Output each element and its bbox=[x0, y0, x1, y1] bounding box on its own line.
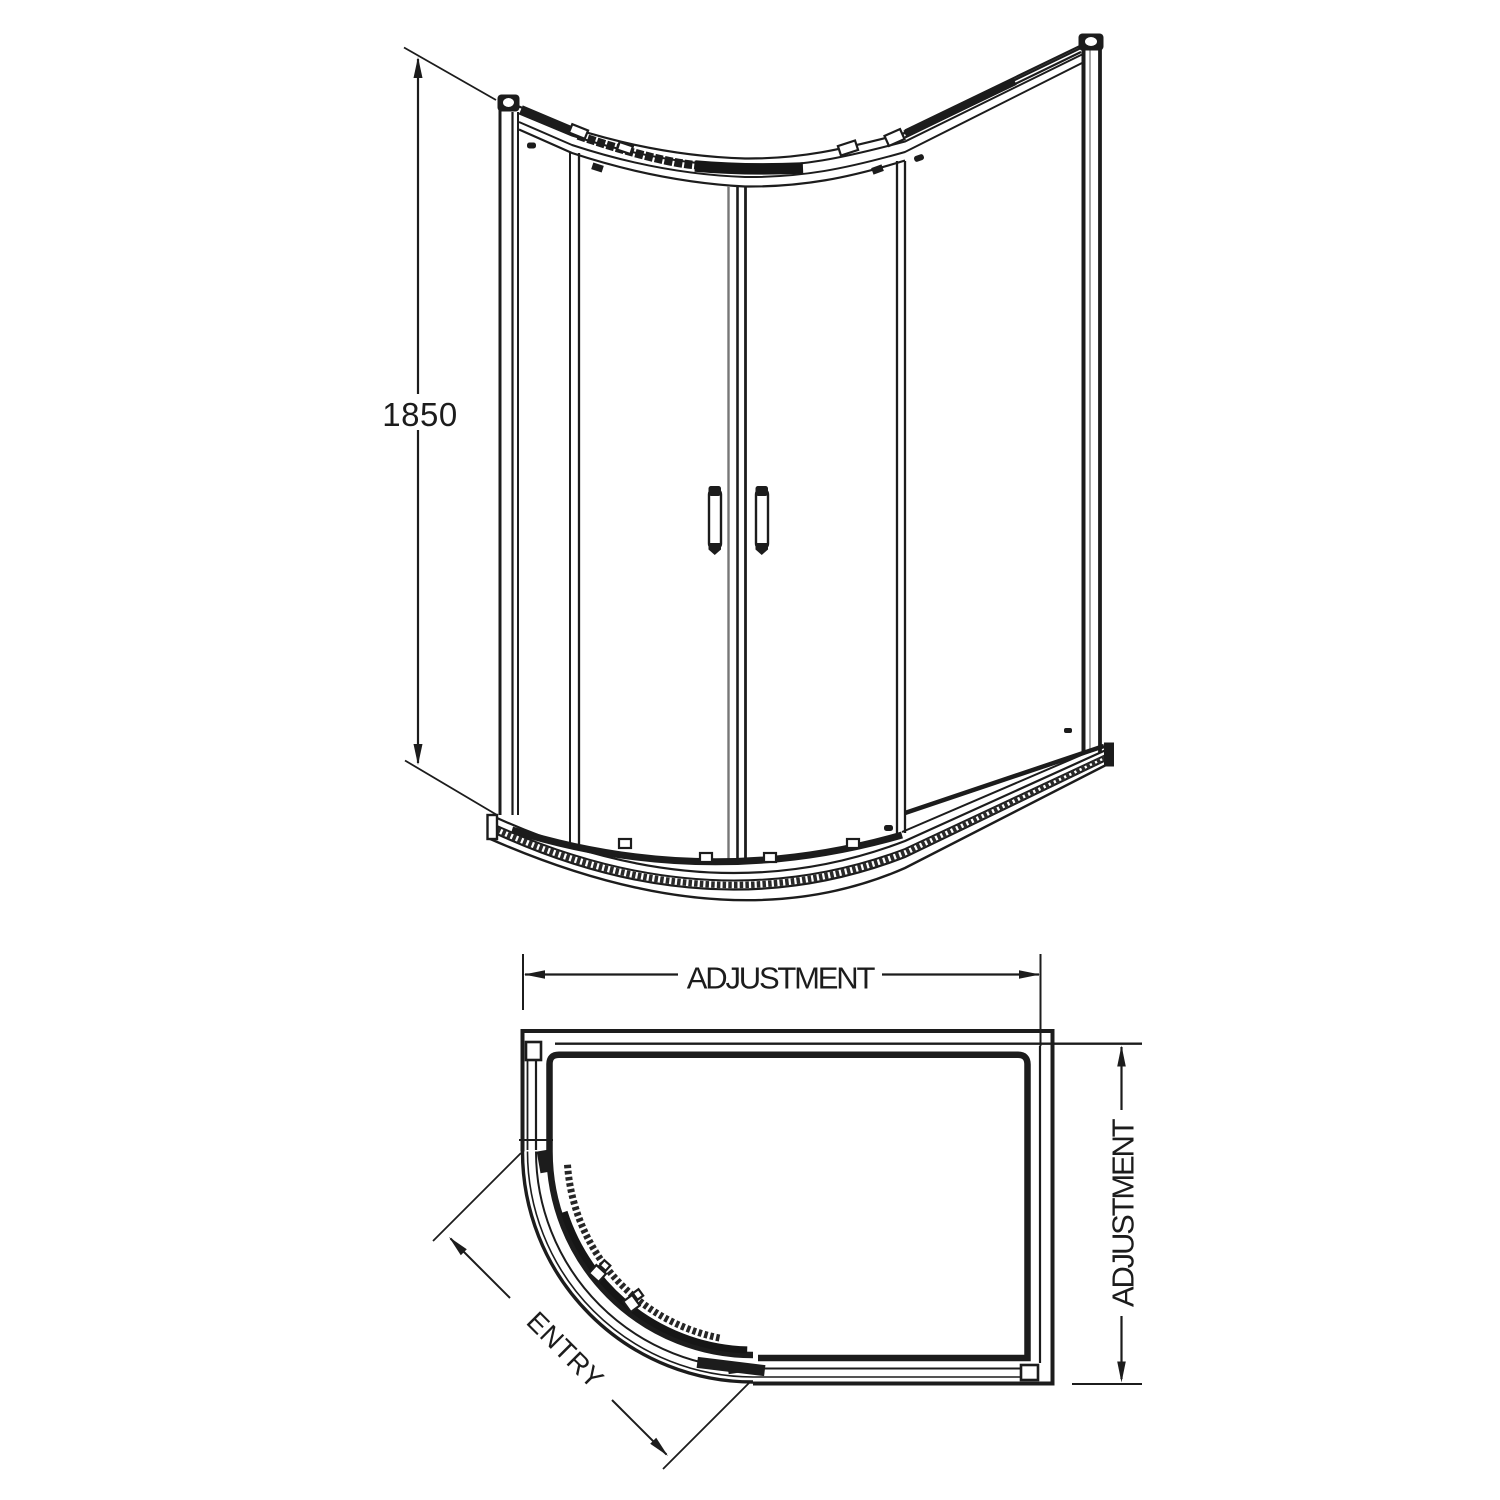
svg-text:ADJUSTMENT: ADJUSTMENT bbox=[1106, 1118, 1141, 1307]
svg-text:1850: 1850 bbox=[382, 396, 457, 433]
svg-text:ADJUSTMENT: ADJUSTMENT bbox=[687, 961, 876, 996]
